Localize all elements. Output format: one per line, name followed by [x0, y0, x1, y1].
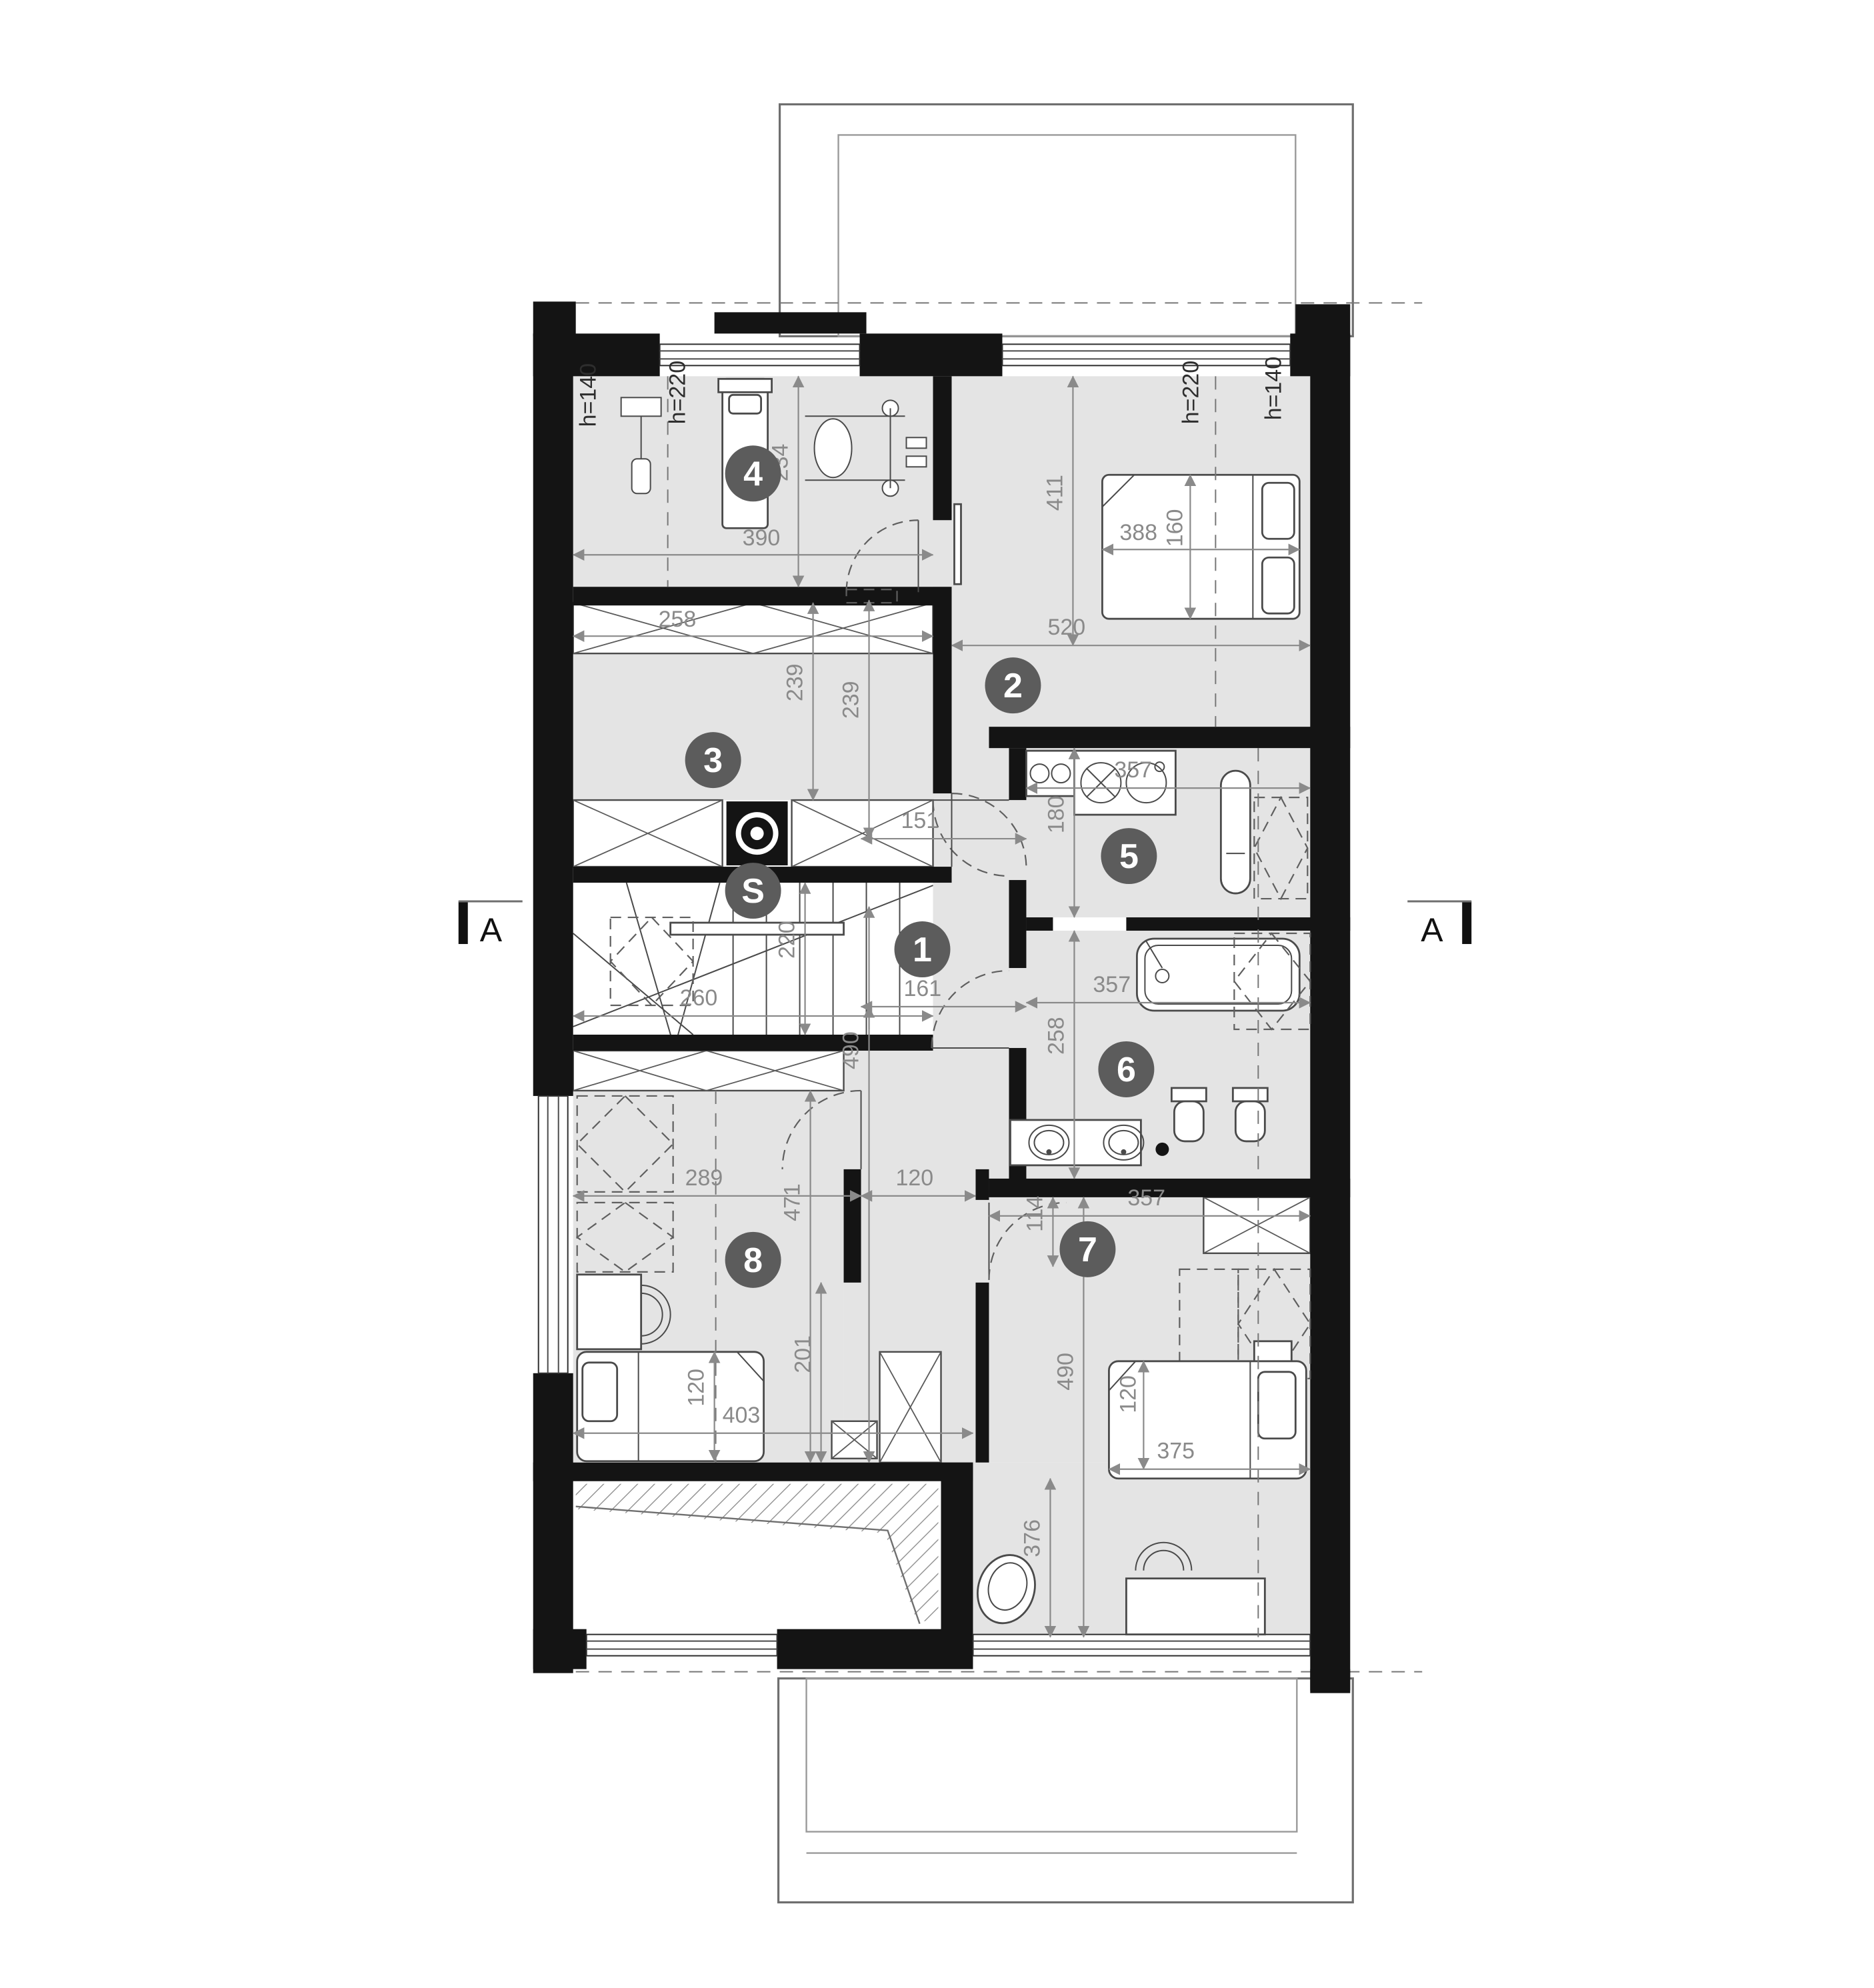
bottom-terrace-outline [576, 1620, 1423, 1903]
floor-plan: 390 234 258 239 520 411 388 160 151 239 … [0, 0, 1874, 1988]
svg-text:6: 6 [1117, 1051, 1136, 1089]
dim-120-room8: 120 [684, 1369, 709, 1407]
dim-151: 151 [901, 808, 939, 833]
dim-357-room5: 357 [1114, 757, 1152, 783]
dim-471: 471 [780, 1183, 805, 1221]
room-7-wardrobe [1203, 1197, 1310, 1253]
room-3-floor [573, 653, 933, 800]
dim-114: 114 [1022, 1196, 1047, 1232]
pillow [583, 1363, 617, 1421]
ironing-board [1221, 771, 1250, 893]
pillow [1262, 557, 1294, 613]
washing-machine [727, 801, 788, 865]
room-badge-6: 6 [1098, 1041, 1154, 1097]
section-letter-right: A [1421, 911, 1443, 949]
svg-text:4: 4 [743, 455, 763, 493]
room-badge-2: 2 [985, 657, 1041, 713]
dim-403: 403 [723, 1403, 761, 1428]
section-marker-right: A [1407, 901, 1471, 949]
dim-120-hall: 120 [896, 1165, 934, 1191]
pillow [1262, 483, 1294, 539]
dim-260: 260 [680, 985, 718, 1011]
dim-201: 201 [791, 1335, 816, 1373]
dim-357-room7: 357 [1127, 1185, 1165, 1211]
dim-289: 289 [685, 1165, 723, 1191]
dim-180: 180 [1043, 795, 1069, 833]
room-7-window [973, 1635, 1310, 1656]
tv [954, 504, 961, 584]
h140-room4: h=140 [576, 363, 601, 427]
dim-490-hall: 490 [839, 1031, 864, 1069]
dim-390: 390 [743, 525, 781, 551]
void-room-window [587, 1635, 777, 1656]
dim-220: 220 [775, 921, 800, 959]
svg-text:S: S [741, 872, 765, 911]
toilet [1233, 1088, 1267, 1141]
dim-120-room7: 120 [1115, 1375, 1141, 1413]
dim-161: 161 [904, 976, 942, 1001]
toilet [1171, 1088, 1206, 1141]
dim-411: 411 [1042, 475, 1067, 511]
page: 390 234 258 239 520 411 388 160 151 239 … [0, 0, 1874, 1988]
dim-375: 375 [1157, 1439, 1195, 1464]
dim-357-room6: 357 [1093, 972, 1131, 997]
h140-room2: h=140 [1261, 357, 1286, 420]
svg-text:1: 1 [913, 931, 932, 969]
room-badge-S: S [725, 863, 781, 919]
understairs-wardrobe [573, 1051, 844, 1091]
dim-239-room3: 239 [783, 663, 808, 701]
room-badge-5: 5 [1101, 828, 1157, 884]
svg-text:7: 7 [1078, 1231, 1097, 1269]
stair-handrail [671, 923, 844, 935]
room-badge-8: 8 [725, 1232, 781, 1288]
dim-376: 376 [1019, 1519, 1045, 1557]
room-badge-1: 1 [895, 921, 951, 977]
h220-room4: h=220 [665, 361, 691, 424]
dim-388: 388 [1119, 520, 1157, 545]
room-badge-3: 3 [685, 732, 741, 788]
pillow [1258, 1372, 1295, 1439]
dim-239-hall: 239 [839, 681, 864, 719]
room-8-window [539, 1096, 568, 1373]
svg-text:5: 5 [1119, 837, 1139, 876]
void-room [573, 1481, 941, 1629]
sink-unit [1026, 751, 1074, 796]
top-terrace-outline [576, 104, 1423, 336]
dim-258-room3: 258 [659, 607, 697, 632]
svg-text:8: 8 [743, 1241, 763, 1280]
svg-text:2: 2 [1003, 667, 1023, 705]
room-3-top-wardrobe [573, 603, 933, 653]
section-marker-left: A [459, 901, 523, 949]
svg-text:3: 3 [703, 741, 723, 780]
room-2-window [1002, 344, 1290, 365]
dim-160: 160 [1162, 509, 1187, 547]
room-badge-4: 4 [725, 445, 781, 501]
room-badge-7: 7 [1059, 1221, 1115, 1277]
bathtub [1137, 939, 1299, 1011]
h220-room2: h=220 [1178, 361, 1203, 424]
room-3-bottom-cabinets [573, 800, 933, 867]
dim-520: 520 [1047, 615, 1085, 640]
dim-490-room7: 490 [1053, 1353, 1078, 1391]
dim-258-room6: 258 [1043, 1017, 1069, 1055]
section-letter-left: A [480, 911, 503, 949]
pillow [729, 395, 761, 413]
